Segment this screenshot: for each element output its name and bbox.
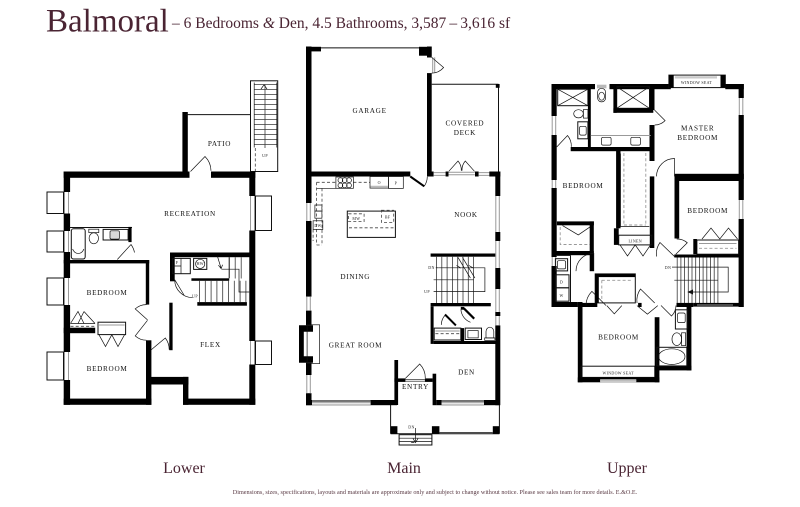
svg-text:DN: DN <box>408 425 414 430</box>
svg-text:PATIO: PATIO <box>208 140 231 148</box>
svg-text:Lower: Lower <box>163 460 205 477</box>
svg-text:HW: HW <box>197 261 204 266</box>
svg-text:O: O <box>378 180 381 185</box>
svg-text:WINDOW SEAT: WINDOW SEAT <box>603 370 635 375</box>
svg-text:GREAT ROOM: GREAT ROOM <box>329 342 382 350</box>
svg-text:DINING: DINING <box>340 273 370 281</box>
svg-text:WINDOW SEAT: WINDOW SEAT <box>681 80 713 85</box>
svg-text:BEDROOM: BEDROOM <box>87 289 128 297</box>
svg-text:DEN: DEN <box>458 369 475 377</box>
svg-text:– 6 Bedrooms & Den, 4.5 Bathro: – 6 Bedrooms & Den, 4.5 Bathrooms, 3,587… <box>171 15 511 32</box>
svg-text:GARAGE: GARAGE <box>353 107 387 115</box>
svg-text:UP: UP <box>262 153 268 158</box>
svg-text:DECK: DECK <box>454 129 476 137</box>
svg-text:UP: UP <box>192 294 198 299</box>
svg-text:BEDROOM: BEDROOM <box>598 334 639 342</box>
svg-text:LINEN: LINEN <box>628 239 642 244</box>
svg-text:BEDROOM: BEDROOM <box>563 182 604 190</box>
svg-text:RECREATION: RECREATION <box>164 210 216 218</box>
svg-text:BEDROOM: BEDROOM <box>87 365 128 373</box>
svg-text:Upper: Upper <box>607 460 648 477</box>
svg-text:ENTRY: ENTRY <box>402 383 429 391</box>
svg-text:MW: MW <box>352 216 360 221</box>
svg-text:COVERED: COVERED <box>445 120 484 128</box>
svg-text:BEDROOM: BEDROOM <box>677 134 718 142</box>
svg-text:D: D <box>560 280 563 285</box>
svg-text:DW: DW <box>314 223 321 228</box>
svg-text:DN: DN <box>665 265 671 270</box>
svg-text:Dimensions, sizes, specificati: Dimensions, sizes, specifications, layou… <box>233 489 638 496</box>
svg-text:BEDROOM: BEDROOM <box>687 207 728 215</box>
svg-text:Balmoral: Balmoral <box>46 4 169 40</box>
svg-text:FLEX: FLEX <box>200 341 221 349</box>
svg-text:MASTER: MASTER <box>681 125 714 133</box>
svg-text:UP: UP <box>424 289 430 294</box>
svg-text:BF: BF <box>385 214 391 219</box>
svg-text:DN: DN <box>428 265 434 270</box>
svg-text:NOOK: NOOK <box>454 211 478 219</box>
svg-text:Main: Main <box>387 460 421 477</box>
svg-text:W: W <box>559 293 563 298</box>
